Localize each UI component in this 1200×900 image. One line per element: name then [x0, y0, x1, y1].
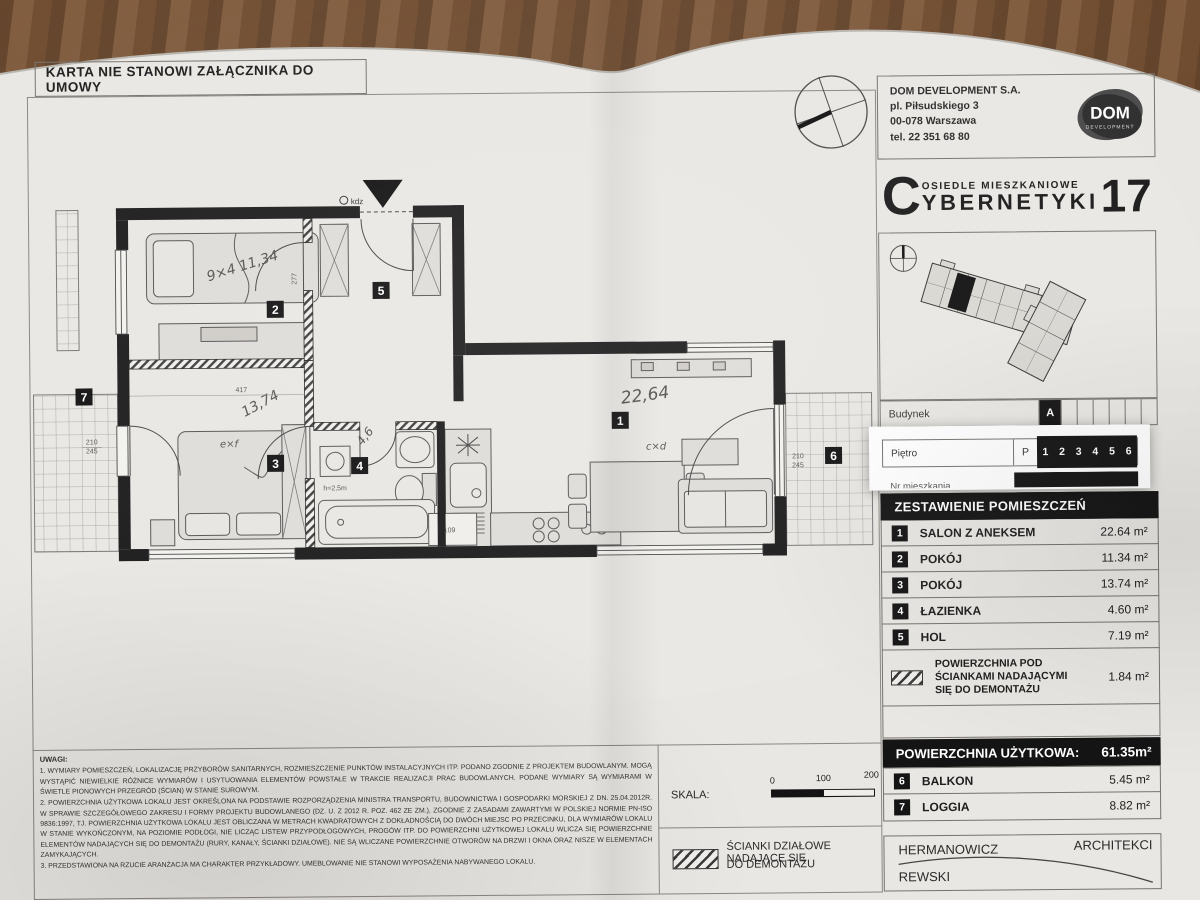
balcony-area: 5.45 m² — [1109, 772, 1150, 786]
room-number-badge: 5 — [893, 629, 909, 645]
demolition-area: 1.84 m² — [1108, 669, 1149, 683]
estate-logo: C OSIEDLE MIESZKANIOWE YBERNETYKI 17 — [882, 165, 1157, 227]
scale-bar-filled — [771, 789, 823, 797]
usable-area-bar: POWIERZCHNIA UŻYTKOWA: 61.35m² — [883, 737, 1161, 767]
scale-label: SKALA: — [671, 789, 710, 801]
photo-of-floor-plan-card: KARTA NIE STANOWI ZAŁĄCZNIKA DO UMOWY DO… — [0, 0, 1200, 900]
floor-number: 5 — [1109, 446, 1115, 458]
entrance-symbol-icon — [340, 196, 348, 204]
brand-initial: C — [882, 176, 921, 220]
extras-table: 6 BALKON 5.45 m² 7 LOGGIA 8.82 m² — [883, 765, 1161, 821]
apartment-row-clipped: Nr mieszkania — [882, 471, 1138, 488]
site-plan — [879, 231, 1156, 399]
floor-number: 2 — [1059, 446, 1065, 458]
balcony-name: BALKON — [922, 773, 973, 787]
floor-number: 1 — [1042, 446, 1048, 458]
room-area: 7.19 m² — [1108, 628, 1149, 642]
floor-label: Piętro — [883, 439, 1013, 466]
floor-plan: kdz 1 2 3 4 5 6 7 22,64 9×4 — [27, 90, 881, 750]
dim-109: 109 — [444, 527, 456, 534]
dim-245: 245 — [86, 448, 98, 455]
badge-loggia: 7 — [81, 390, 88, 404]
demolition-line: SIĘ DO DEMONTAŻU — [935, 683, 1068, 697]
table-row: 3 POKÓJ 13.74 m² — [881, 570, 1159, 598]
dim-417: 417 — [235, 387, 247, 394]
scale-tick: 0 — [770, 775, 775, 785]
table-row: 6 BALKON 5.45 m² — [883, 765, 1161, 794]
apartment-numbers-strip — [1014, 471, 1138, 488]
note-item: 2. POWIERZCHNIA UŻYTKOWA LOKALU JEST OKR… — [40, 794, 653, 861]
scale-tick: 200 — [864, 770, 879, 780]
logo-text: DOM — [1090, 103, 1130, 122]
badge-hall: 5 — [378, 284, 385, 298]
dim-210: 210 — [86, 439, 98, 446]
dim-277: 277 — [291, 273, 298, 285]
dim-height: h=2,5m — [323, 485, 347, 492]
demountable-wall-legend-icon — [672, 849, 718, 869]
room-area: 11.34 m² — [1101, 550, 1148, 564]
notes-block: UWAGI: 1. WYMIARY POMIESZCZEŃ, LOKALIZAC… — [40, 749, 653, 874]
table-row: 1 SALON Z ANEKSEM 22.64 m² — [881, 518, 1159, 546]
empty-row — [882, 704, 1160, 738]
document-content: KARTA NIE STANOWI ZAŁĄCZNIKA DO UMOWY DO… — [0, 0, 1200, 900]
living-room-furniture — [567, 359, 773, 535]
room-name: POKÓJ — [920, 551, 962, 565]
dom-development-logo: DOM DEVELOPMENT — [1074, 84, 1147, 147]
building-empty-cell — [1141, 399, 1157, 424]
loggia-strip-area — [56, 211, 79, 351]
building-empty-cell — [1125, 399, 1141, 424]
loggia-name: LOGGIA — [922, 800, 969, 814]
balcony-badge: 6 — [894, 773, 910, 789]
loggia-badge: 7 — [894, 799, 910, 815]
company-box: DOM DEVELOPMENT S.A. pl. Piłsudskiego 3 … — [877, 73, 1156, 159]
building-empty-cell — [1061, 400, 1077, 425]
demountable-wall-icon — [891, 670, 923, 685]
building-empty-cell — [1093, 400, 1109, 425]
scale-bar-outline — [823, 789, 875, 797]
table-row: 4 ŁAZIENKA 4.60 m² — [881, 596, 1159, 624]
room-number-badge: 3 — [892, 577, 908, 593]
building-value: A — [1039, 400, 1061, 425]
floor-number: 3 — [1076, 446, 1082, 458]
loggia-area — [33, 394, 118, 552]
legend-line2: DO DEMONTAŻU — [727, 858, 816, 871]
room-name: ŁAZIENKA — [920, 603, 981, 618]
floor-number: 6 — [1126, 445, 1132, 457]
room-name: POKÓJ — [920, 577, 962, 591]
room-schedule: ZESTAWIENIE POMIESZCZEŃ 1 SALON Z ANEKSE… — [880, 491, 1160, 738]
badge-bathroom: 4 — [356, 459, 363, 473]
survey-mark-room3: e×f — [220, 439, 240, 450]
floor-numbers-strip: 1 2 3 4 5 6 — [1037, 435, 1137, 468]
room-schedule-header: ZESTAWIENIE POMIESZCZEŃ — [880, 491, 1158, 520]
room-area: 22.64 m² — [1100, 524, 1147, 538]
room-area: 4.60 m² — [1108, 602, 1149, 616]
disclaimer-text: KARTA NIE STANOWI ZAŁĄCZNIKA DO UMOWY — [46, 62, 366, 95]
badge-room2: 2 — [272, 303, 279, 317]
room-name: HOL — [921, 629, 946, 643]
badge-balcony: 6 — [830, 449, 837, 463]
logo-subtext: DEVELOPMENT — [1086, 124, 1135, 130]
badge-salon: 1 — [617, 414, 624, 428]
note-item: 1. WYMIARY POMIESZCZEŃ, LOKALIZACJĘ PRZY… — [40, 762, 652, 798]
scale-box: SKALA: 0 100 200 — [658, 743, 883, 828]
loggia-area: 8.82 m² — [1109, 798, 1150, 812]
demolition-row: POWIERZCHNIA POD ŚCIANKAMI NADAJĄCYMI SI… — [882, 648, 1160, 706]
floor-highlight-overlay: Piętro P 1 2 3 4 5 6 Nr mieszkania — [869, 424, 1151, 490]
room2-furniture — [146, 232, 319, 361]
room-number-badge: 2 — [892, 551, 908, 567]
table-row: 7 LOGGIA 8.82 m² — [883, 792, 1161, 821]
entrance-marker — [363, 180, 403, 208]
room-number-badge: 1 — [892, 525, 908, 541]
room-number-badge: 4 — [892, 603, 908, 619]
entrance-label: kdz — [351, 197, 364, 206]
table-row: 2 POKÓJ 11.34 m² — [881, 544, 1159, 572]
badge-room3: 3 — [272, 457, 279, 471]
room-name: SALON Z ANEKSEM — [920, 525, 1036, 540]
handwritten-salon-area: 22,64 — [620, 383, 671, 409]
floor-prefix: P — [1013, 439, 1037, 465]
disclaimer-box: KARTA NIE STANOWI ZAŁĄCZNIKA DO UMOWY — [35, 59, 367, 97]
architect-signature-curve — [884, 834, 1160, 890]
scale-tick: 100 — [816, 773, 831, 783]
building-empty-cell — [1077, 400, 1093, 425]
demolition-line: POWIERZCHNIA POD — [935, 657, 1068, 671]
brand-name: YBERNETYKI — [922, 190, 1099, 214]
dim-245b: 245 — [792, 462, 804, 469]
room-area: 13.74 m² — [1101, 576, 1148, 590]
floor-row: Piętro P 1 2 3 4 5 6 — [882, 437, 1138, 467]
building-label: Budynek — [881, 400, 1039, 426]
survey-mark-salon: c×d — [646, 441, 667, 452]
building-row: Budynek A — [880, 398, 1158, 427]
dim-210b: 210 — [792, 453, 804, 460]
usable-area-value: 61.35m² — [1101, 744, 1160, 760]
usable-area-label: POWIERZCHNIA UŻYTKOWA: — [883, 744, 1080, 761]
building-empty-cell — [1109, 399, 1125, 424]
table-row: 5 HOL 7.19 m² — [882, 622, 1160, 650]
brand-number: 17 — [1100, 177, 1151, 214]
floor-number: 4 — [1092, 446, 1098, 458]
site-plan-box — [878, 230, 1157, 400]
legend-box: ŚCIANKI DZIAŁOWE NADAJĄCE SIĘ DO DEMONTA… — [658, 826, 883, 895]
architect-box: HERMANOWICZ ARCHITEKCI REWSKI — [883, 833, 1161, 891]
demolition-line: ŚCIANKAMI NADAJĄCYMI — [935, 670, 1068, 684]
apartment-label: Nr mieszkania — [882, 472, 1014, 488]
